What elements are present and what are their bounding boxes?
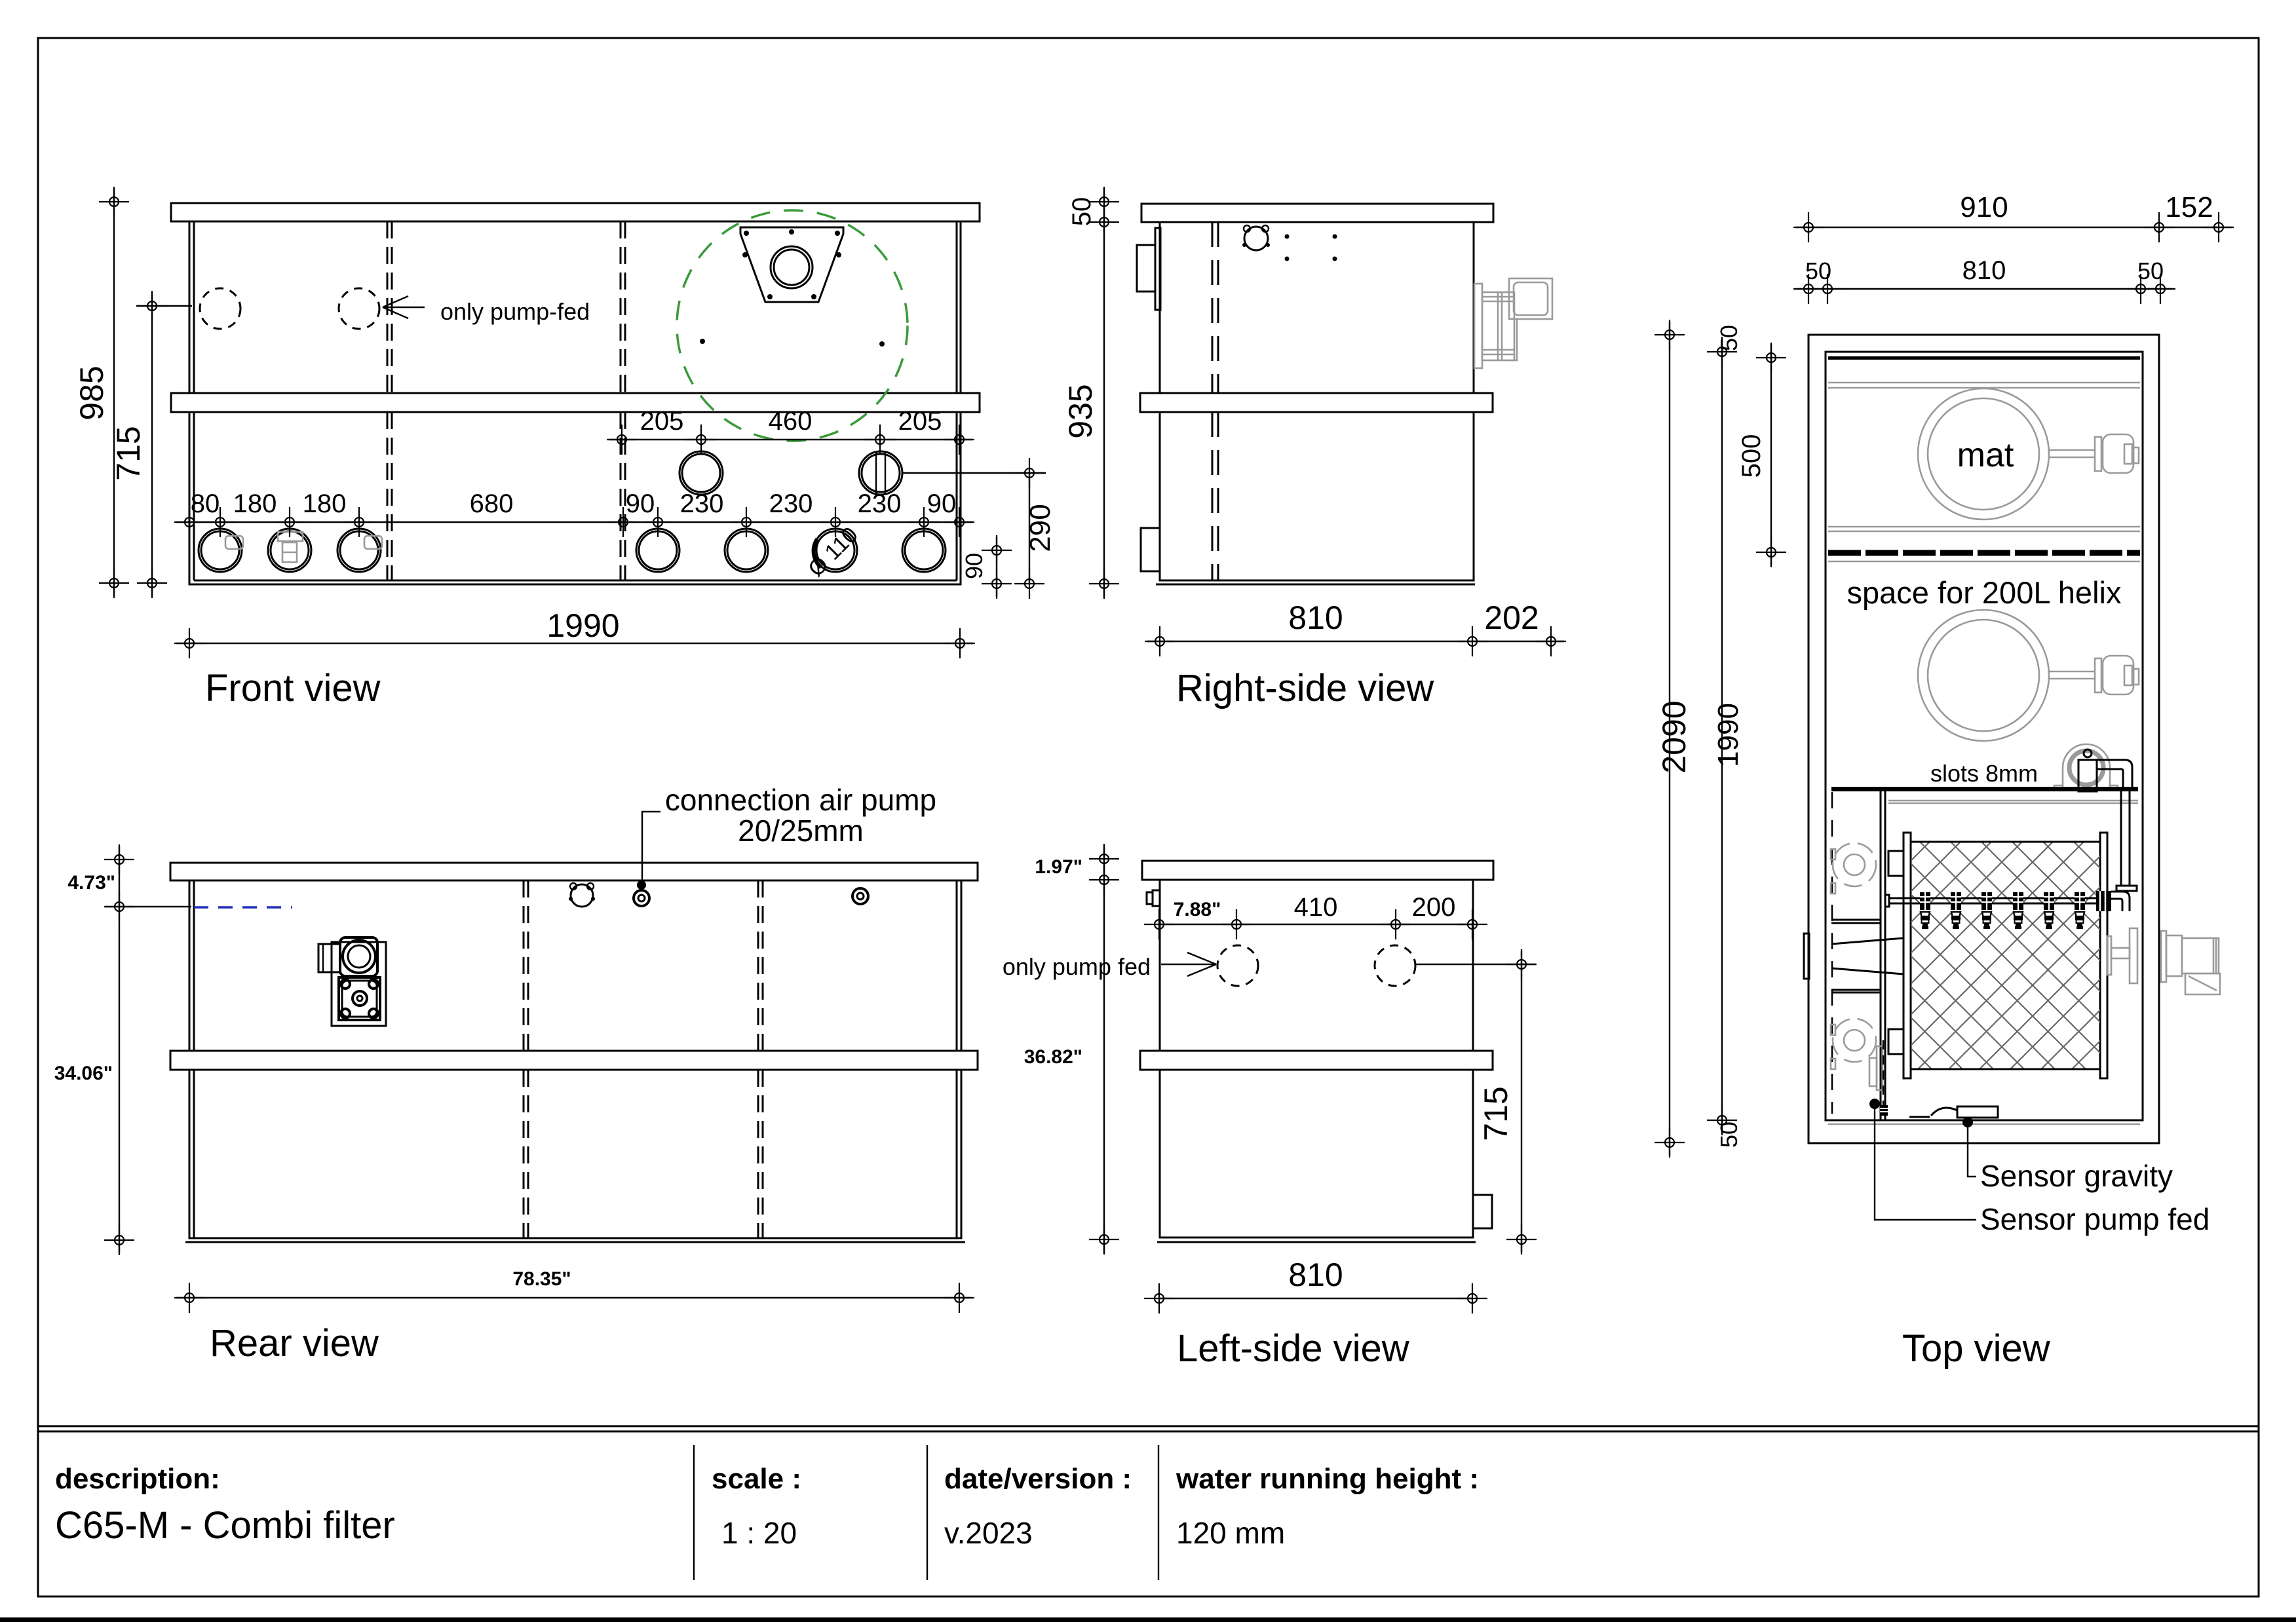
svg-text:only pump-fed: only pump-fed <box>440 298 590 325</box>
svg-text:180: 180 <box>233 489 277 518</box>
svg-text:slots 8mm: slots 8mm <box>1930 760 2038 787</box>
svg-text:152: 152 <box>2165 191 2213 223</box>
svg-text:1990: 1990 <box>546 607 619 644</box>
svg-text:500: 500 <box>1737 434 1766 478</box>
svg-text:20/25mm: 20/25mm <box>738 814 864 848</box>
svg-text:4.73": 4.73" <box>67 872 115 894</box>
svg-text:120 mm: 120 mm <box>1176 1516 1285 1550</box>
svg-text:Rear view: Rear view <box>210 1322 379 1365</box>
svg-text:only pump fed: only pump fed <box>1003 953 1151 980</box>
svg-text:80: 80 <box>191 489 220 518</box>
svg-text:410: 410 <box>1294 893 1338 922</box>
svg-text:90: 90 <box>626 489 655 518</box>
svg-text:78.35": 78.35" <box>512 1268 571 1290</box>
svg-text:description:: description: <box>55 1463 220 1495</box>
svg-text:7.88": 7.88" <box>1174 899 1221 920</box>
svg-text:50: 50 <box>2137 257 2164 284</box>
svg-text:810: 810 <box>1288 1256 1343 1293</box>
svg-text:205: 205 <box>640 407 684 436</box>
svg-text:50: 50 <box>1805 257 1831 284</box>
svg-text:connection air pump: connection air pump <box>665 783 936 817</box>
svg-text:Top view: Top view <box>1902 1327 2051 1370</box>
svg-text:910: 910 <box>1960 191 2008 223</box>
svg-text:Front view: Front view <box>205 667 381 709</box>
svg-text:230: 230 <box>680 489 724 518</box>
svg-text:C65-M - Combi filter: C65-M - Combi filter <box>55 1504 395 1547</box>
svg-text:50: 50 <box>1715 325 1742 351</box>
svg-text:water running height :: water running height : <box>1176 1463 1479 1495</box>
svg-text:Sensor gravity: Sensor gravity <box>1980 1159 2173 1193</box>
svg-text:230: 230 <box>858 489 902 518</box>
svg-text:1 : 20: 1 : 20 <box>721 1516 797 1550</box>
svg-text:460: 460 <box>769 407 813 436</box>
svg-text:mat: mat <box>1957 436 2014 474</box>
svg-text:180: 180 <box>303 489 347 518</box>
svg-text:50: 50 <box>1067 197 1096 227</box>
svg-text:290: 290 <box>1024 504 1056 552</box>
svg-text:36.82": 36.82" <box>1024 1046 1082 1068</box>
svg-text:202: 202 <box>1484 599 1539 636</box>
svg-text:1990: 1990 <box>1712 703 1744 767</box>
svg-text:date/version :: date/version : <box>944 1463 1132 1495</box>
svg-text:90: 90 <box>927 489 957 518</box>
svg-text:90: 90 <box>961 553 987 579</box>
svg-text:230: 230 <box>769 489 813 518</box>
svg-text:680: 680 <box>470 489 514 518</box>
svg-text:985: 985 <box>73 366 110 420</box>
svg-text:715: 715 <box>110 426 147 480</box>
svg-text:715: 715 <box>1478 1086 1514 1141</box>
svg-text:50: 50 <box>1715 1122 1742 1148</box>
svg-text:935: 935 <box>1062 384 1099 438</box>
svg-text:space for 200L helix: space for 200L helix <box>1847 575 2122 610</box>
svg-text:Left-side view: Left-side view <box>1177 1327 1410 1370</box>
svg-text:2090: 2090 <box>1656 700 1693 773</box>
svg-text:1.97": 1.97" <box>1035 856 1082 878</box>
svg-text:205: 205 <box>898 407 942 436</box>
svg-text:v.2023: v.2023 <box>944 1516 1033 1550</box>
svg-text:scale :: scale : <box>712 1463 801 1495</box>
svg-text:34.06": 34.06" <box>54 1063 113 1084</box>
svg-text:200: 200 <box>1412 893 1456 922</box>
svg-text:Sensor pump fed: Sensor pump fed <box>1980 1202 2210 1236</box>
svg-text:Right-side view: Right-side view <box>1176 667 1434 709</box>
svg-text:810: 810 <box>1288 599 1343 636</box>
svg-text:810: 810 <box>1962 256 2006 285</box>
